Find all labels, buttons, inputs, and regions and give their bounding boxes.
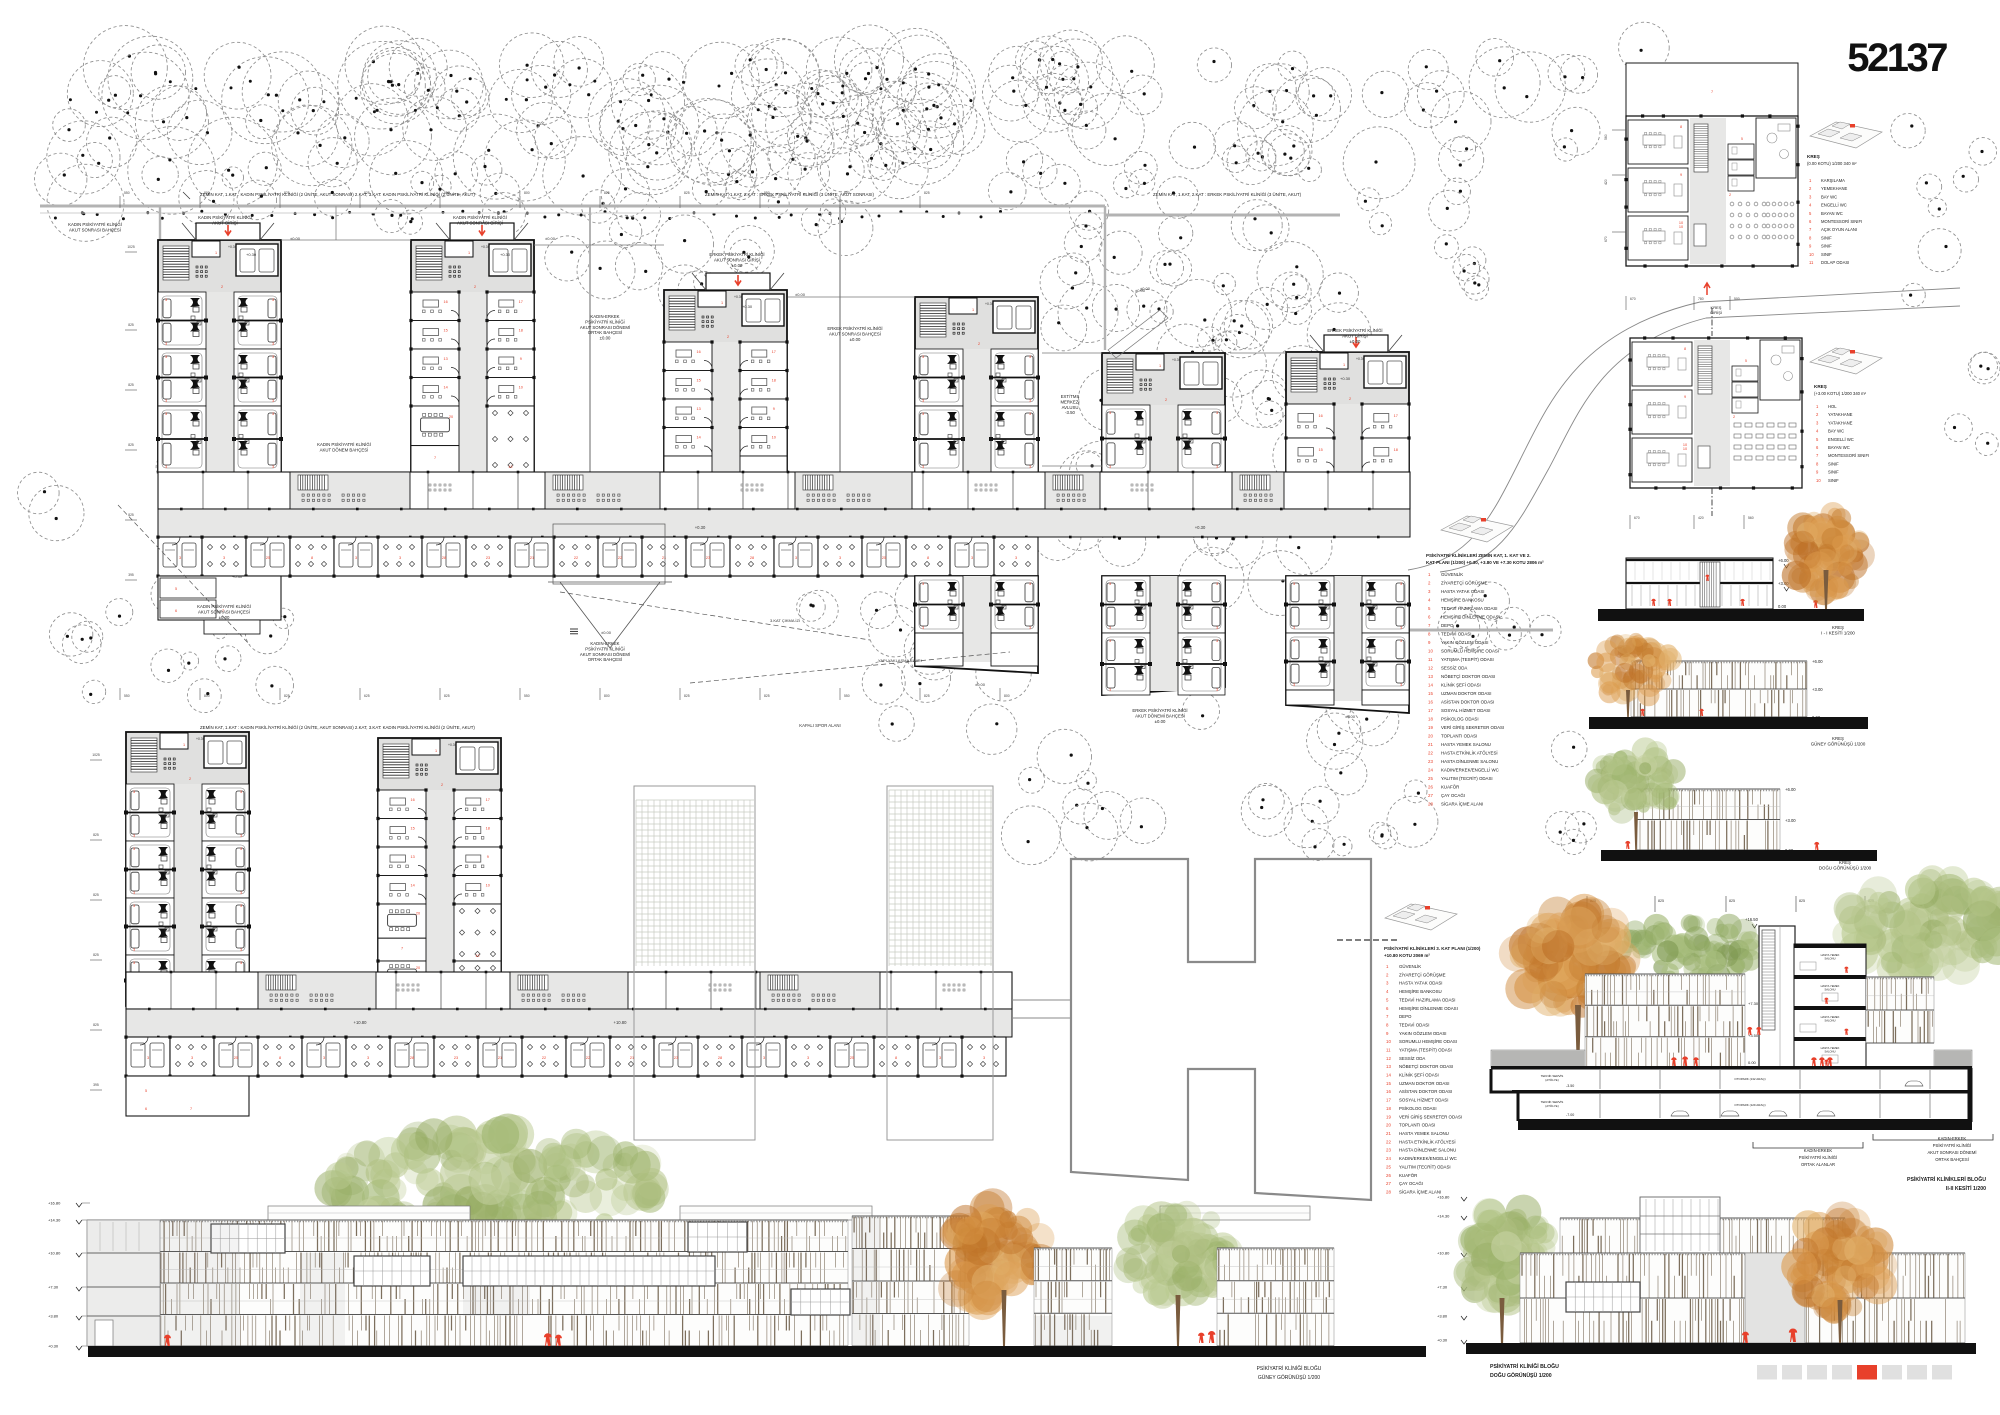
svg-text:±0.00: ±0.00 <box>290 236 301 241</box>
svg-text:BAYAN WC: BAYAN WC <box>1828 445 1850 450</box>
svg-text:±0.00: ±0.00 <box>600 336 611 341</box>
svg-text:-3.50: -3.50 <box>1566 1084 1574 1088</box>
svg-text:3: 3 <box>240 847 242 851</box>
svg-text:3: 3 <box>272 465 274 469</box>
svg-text:3: 3 <box>272 342 274 346</box>
svg-text:8: 8 <box>1680 125 1682 129</box>
svg-text:23: 23 <box>454 1056 458 1060</box>
svg-text:1: 1 <box>1343 363 1345 367</box>
svg-text:+16.80: +16.80 <box>48 1201 61 1206</box>
svg-text:11: 11 <box>1386 1048 1391 1053</box>
svg-text:AKUT GİRİŞİ: AKUT GİRİŞİ <box>1342 333 1367 338</box>
svg-text:26: 26 <box>1428 785 1433 790</box>
svg-text:3: 3 <box>223 556 225 560</box>
svg-text:3: 3 <box>983 1056 985 1060</box>
svg-text:+3.80: +3.80 <box>1437 1314 1448 1319</box>
svg-text:18: 18 <box>1386 1106 1391 1111</box>
svg-text:550: 550 <box>124 694 130 698</box>
svg-text:800: 800 <box>1004 694 1010 698</box>
svg-text:10: 10 <box>772 435 776 439</box>
svg-text:3: 3 <box>147 1056 149 1060</box>
svg-text:18: 18 <box>486 826 490 830</box>
svg-text:BAYAN WC: BAYAN WC <box>1821 211 1843 216</box>
svg-text:KUAFÖR: KUAFÖR <box>1399 1173 1417 1178</box>
svg-text:28: 28 <box>442 556 446 560</box>
svg-text:3: 3 <box>763 1056 765 1060</box>
svg-text:AKUT SONRASI DÖNEMİ: AKUT SONRASI DÖNEMİ <box>580 325 630 330</box>
svg-text:3: 3 <box>1029 399 1031 403</box>
svg-text:HASTA YATAK ODASI: HASTA YATAK ODASI <box>1399 981 1443 986</box>
svg-text:10: 10 <box>1428 649 1433 654</box>
svg-text:PSİKOLOG ODASI: PSİKOLOG ODASI <box>1399 1106 1437 1111</box>
svg-text:+7.30: +7.30 <box>1748 1001 1759 1006</box>
svg-text:+0.30: +0.30 <box>196 737 205 741</box>
svg-text:825: 825 <box>1658 899 1664 903</box>
svg-text:21: 21 <box>1428 742 1433 747</box>
svg-text:SESSİZ ODA: SESSİZ ODA <box>1399 1056 1425 1061</box>
svg-text:±0.00: ±0.00 <box>732 263 743 268</box>
svg-text:3: 3 <box>839 556 841 560</box>
svg-text:YATAKHANE: YATAKHANE <box>1828 412 1853 417</box>
svg-text:5: 5 <box>1741 137 1743 141</box>
svg-text:550: 550 <box>124 191 130 195</box>
svg-text:SALONU: SALONU <box>1824 987 1835 991</box>
svg-text:PSİKİYATRİ KLİNİĞİ: PSİKİYATRİ KLİNİĞİ <box>1933 1143 1971 1148</box>
svg-text:MONTESSORİ SINIFI: MONTESSORİ SINIFI <box>1821 219 1862 224</box>
svg-text:23: 23 <box>706 556 710 560</box>
svg-text:16: 16 <box>1318 414 1322 418</box>
svg-text:TEDAVİ HAZIRLAMA ODASI: TEDAVİ HAZIRLAMA ODASI <box>1399 997 1456 1002</box>
svg-text:+7.30: +7.30 <box>48 1285 59 1290</box>
svg-text:HEMŞİRE DİNLENME ODASI: HEMŞİRE DİNLENME ODASI <box>1399 1006 1458 1011</box>
svg-text:ÇAY OCAĞI: ÇAY OCAĞI <box>1399 1181 1423 1186</box>
svg-text:HEMŞİRE DİNLENME ODASI: HEMŞİRE DİNLENME ODASI <box>1441 615 1500 620</box>
svg-text:18: 18 <box>772 378 776 382</box>
svg-text:(0.00 KOTU) 1/200 340 m²: (0.00 KOTU) 1/200 340 m² <box>1807 161 1857 166</box>
svg-text:3: 3 <box>272 298 274 302</box>
svg-text:13: 13 <box>1428 674 1433 679</box>
svg-text:AKUT SONRASI BAHÇESİ: AKUT SONRASI BAHÇESİ <box>69 227 121 232</box>
svg-text:SINIF: SINIF <box>1821 252 1832 257</box>
svg-text:MONTESSORİ SINIFI: MONTESSORİ SINIFI <box>1828 453 1869 458</box>
svg-text:NÖBETÇİ DOKTOR ODASI: NÖBETÇİ DOKTOR ODASI <box>1399 1064 1453 1069</box>
svg-text:SİGARA İÇME ALANI: SİGARA İÇME ALANI <box>1399 1190 1441 1195</box>
svg-text:3.KAT ÇIKMA İZİ: 3.KAT ÇIKMA İZİ <box>770 618 800 623</box>
svg-text:14: 14 <box>410 883 414 887</box>
svg-text:24: 24 <box>1386 1156 1391 1161</box>
svg-text:I - I KESİTİ 1/200: I - I KESİTİ 1/200 <box>1821 631 1855 636</box>
svg-text:52137: 52137 <box>1847 36 1947 80</box>
svg-text:20: 20 <box>1386 1123 1391 1128</box>
svg-text:28: 28 <box>1428 802 1433 807</box>
svg-text:825: 825 <box>93 893 99 897</box>
svg-text:825: 825 <box>128 323 134 327</box>
svg-text:21: 21 <box>530 556 534 560</box>
svg-text:3: 3 <box>1216 582 1218 586</box>
svg-text:3: 3 <box>1109 582 1111 586</box>
svg-text:KADIN PSİKİYATRİ KLİNİĞİ: KADIN PSİKİYATRİ KLİNİĞİ <box>198 215 252 220</box>
svg-text:SINIF: SINIF <box>1828 461 1839 466</box>
svg-text:3: 3 <box>272 412 274 416</box>
svg-text:3: 3 <box>1216 688 1218 692</box>
svg-text:10: 10 <box>519 385 523 389</box>
svg-text:KAT PLANI (1/200) +0.30, +3.8: KAT PLANI (1/200) +0.30, +3.80 VE +7.30 … <box>1426 560 1544 565</box>
svg-text:25: 25 <box>1428 776 1433 781</box>
svg-text:+3.00: +3.00 <box>1785 818 1796 823</box>
svg-text:22: 22 <box>542 1056 546 1060</box>
svg-text:KADIN PSİKİYATRİ KLİNİĞİ: KADIN PSİKİYATRİ KLİNİĞİ <box>453 215 507 220</box>
svg-text:AKUT SONRASI DÖNEMİ: AKUT SONRASI DÖNEMİ <box>580 652 630 657</box>
svg-text:3: 3 <box>133 891 135 895</box>
svg-text:3: 3 <box>165 342 167 346</box>
svg-text:11: 11 <box>1809 260 1814 265</box>
svg-text:AKUT DÖNEMİ BAHÇESİ: AKUT DÖNEMİ BAHÇESİ <box>1135 713 1185 718</box>
svg-text:3: 3 <box>240 790 242 794</box>
svg-text:+6.00: +6.00 <box>1812 659 1823 664</box>
svg-text:1: 1 <box>435 749 437 753</box>
svg-text:825: 825 <box>924 191 930 195</box>
svg-text:17: 17 <box>1386 1098 1391 1103</box>
svg-text:3: 3 <box>1109 411 1111 415</box>
svg-text:23: 23 <box>1386 1148 1391 1153</box>
svg-text:3: 3 <box>323 1056 325 1060</box>
svg-text:3: 3 <box>922 355 924 359</box>
svg-text:3: 3 <box>133 790 135 794</box>
svg-text:3: 3 <box>807 1056 809 1060</box>
svg-text:AVLUSU: AVLUSU <box>1062 405 1079 410</box>
svg-text:19: 19 <box>1428 725 1433 730</box>
svg-text:+0.30: +0.30 <box>232 574 243 579</box>
svg-text:AKUT GİRİŞİ: AKUT GİRİŞİ <box>212 220 237 225</box>
svg-text:800: 800 <box>844 191 850 195</box>
svg-text:12: 12 <box>1428 666 1433 671</box>
svg-text:PSİKİYATRİ KLİNİĞİ: PSİKİYATRİ KLİNİĞİ <box>585 319 624 324</box>
svg-text:21: 21 <box>630 1056 634 1060</box>
svg-text:±0.00: ±0.00 <box>1345 714 1356 719</box>
svg-text:GÜVENLİK: GÜVENLİK <box>1399 964 1421 969</box>
svg-text:22: 22 <box>618 556 622 560</box>
svg-text:±0.00: ±0.00 <box>1350 339 1361 344</box>
svg-text:II-II KESİTİ 1/200: II-II KESİTİ 1/200 <box>1946 1185 1986 1192</box>
svg-text:KLİNİK ŞEFİ ODASI: KLİNİK ŞEFİ ODASI <box>1441 683 1481 688</box>
svg-text:16: 16 <box>696 350 700 354</box>
svg-text:550: 550 <box>764 191 770 195</box>
svg-text:KARŞILAMA: KARŞILAMA <box>1821 178 1845 183</box>
svg-text:GÜVENLİK: GÜVENLİK <box>1441 572 1463 577</box>
svg-text:SALONU: SALONU <box>1824 956 1835 960</box>
svg-text:YAKIN GÖZLEM ODASI: YAKIN GÖZLEM ODASI <box>1399 1031 1447 1036</box>
svg-text:3: 3 <box>272 399 274 403</box>
svg-text:560: 560 <box>1748 516 1754 520</box>
svg-text:25: 25 <box>266 556 270 560</box>
svg-text:HEMŞİRE BANKOSU: HEMŞİRE BANKOSU <box>1399 989 1442 994</box>
svg-text:20: 20 <box>416 911 420 915</box>
svg-text:25: 25 <box>850 1056 854 1060</box>
svg-text:KADIN/ERKEK/ENGELLİ WC: KADIN/ERKEK/ENGELLİ WC <box>1441 768 1499 773</box>
svg-text:3: 3 <box>191 1056 193 1060</box>
svg-text:3: 3 <box>1015 556 1017 560</box>
svg-text:21: 21 <box>1386 1131 1391 1136</box>
svg-text:3: 3 <box>1400 626 1402 630</box>
svg-text:3: 3 <box>240 904 242 908</box>
svg-text:KADIN-ERKEK: KADIN-ERKEK <box>590 314 619 319</box>
svg-text:DEPO: DEPO <box>1441 623 1454 628</box>
svg-text:3: 3 <box>165 465 167 469</box>
svg-text:3: 3 <box>165 412 167 416</box>
svg-text:+3.00: +3.00 <box>1812 687 1823 692</box>
svg-text:825: 825 <box>1729 899 1735 903</box>
svg-text:+0.30: +0.30 <box>695 525 706 530</box>
svg-text:800: 800 <box>204 191 210 195</box>
svg-text:15: 15 <box>696 378 700 382</box>
svg-text:8: 8 <box>311 556 313 560</box>
svg-text:ZİYARETÇİ GÖRÜŞME: ZİYARETÇİ GÖRÜŞME <box>1399 972 1446 977</box>
svg-text:ZEMİN KAT, 1.KAT : KADIN PSKİL: ZEMİN KAT, 1.KAT : KADIN PSKİLİYATRİ KLİ… <box>200 725 475 730</box>
svg-text:10: 10 <box>1386 1039 1391 1044</box>
svg-text:KADIN PSİKİYATRİ KLİNİĞİ: KADIN PSİKİYATRİ KLİNİĞİ <box>68 222 122 227</box>
svg-text:SORUMLU HEMŞİRE ODASI: SORUMLU HEMŞİRE ODASI <box>1441 649 1499 654</box>
svg-text:825: 825 <box>128 443 134 447</box>
svg-text:3: 3 <box>1029 412 1031 416</box>
svg-text:HASTA YEMEK SALONU: HASTA YEMEK SALONU <box>1399 1131 1449 1136</box>
svg-text:PSİKİYATRİ KLİNİĞİ BLOĞU: PSİKİYATRİ KLİNİĞİ BLOĞU <box>1257 1365 1322 1372</box>
svg-text:9: 9 <box>487 855 489 859</box>
svg-text:YALITIM (TECRİT) ODASI: YALITIM (TECRİT) ODASI <box>1441 776 1493 781</box>
svg-text:3: 3 <box>355 556 357 560</box>
svg-text:1: 1 <box>215 251 217 255</box>
svg-text:825: 825 <box>684 694 690 698</box>
svg-text:YEMEKHANE: YEMEKHANE <box>1821 186 1848 191</box>
svg-text:1025: 1025 <box>127 245 135 249</box>
svg-text:3: 3 <box>133 961 135 965</box>
svg-text:EXT/TMS: EXT/TMS <box>1061 394 1080 399</box>
svg-text:AKUT SONRASI GİRİŞİ: AKUT SONRASI GİRİŞİ <box>457 220 503 225</box>
svg-text:ZEMİN KAT, 1.KAT, 2.KAT : ERKE: ZEMİN KAT, 1.KAT, 2.KAT : ERKEK PSKİLİYA… <box>1153 192 1302 197</box>
svg-text:3: 3 <box>939 1056 941 1060</box>
svg-text:3: 3 <box>922 465 924 469</box>
svg-text:17: 17 <box>486 798 490 802</box>
svg-text:HASTA DİNLENME SALONU: HASTA DİNLENME SALONU <box>1441 759 1498 764</box>
svg-text:395: 395 <box>93 1083 99 1087</box>
svg-text:22: 22 <box>586 1056 590 1060</box>
svg-text:9: 9 <box>520 357 522 361</box>
svg-text:(ATÖLYE): (ATÖLYE) <box>1545 1104 1558 1108</box>
svg-text:3: 3 <box>1293 683 1295 687</box>
svg-text:±0.00: ±0.00 <box>1155 719 1166 724</box>
svg-text:3: 3 <box>922 412 924 416</box>
svg-text:3: 3 <box>1216 626 1218 630</box>
svg-text:8: 8 <box>895 1056 897 1060</box>
svg-text:HASTA ETKİNLİK ATÖLYESİ: HASTA ETKİNLİK ATÖLYESİ <box>1399 1139 1456 1144</box>
svg-text:SALONU: SALONU <box>1824 1049 1835 1053</box>
svg-text:13: 13 <box>1386 1064 1391 1069</box>
svg-text:VERİ GİRİŞ SEKRETER ODASI: VERİ GİRİŞ SEKRETER ODASI <box>1399 1114 1462 1119</box>
svg-text:16: 16 <box>443 300 447 304</box>
svg-text:+10.80: +10.80 <box>354 1020 368 1025</box>
svg-text:+0.30: +0.30 <box>246 252 257 257</box>
svg-text:17: 17 <box>1428 708 1433 713</box>
svg-text:800: 800 <box>524 191 530 195</box>
svg-text:PSİKOLOG ODASI: PSİKOLOG ODASI <box>1441 717 1479 722</box>
svg-text:9: 9 <box>1680 173 1682 177</box>
svg-text:550: 550 <box>444 191 450 195</box>
svg-text:17: 17 <box>772 350 776 354</box>
svg-text:KREŞ: KREŞ <box>1807 154 1820 159</box>
svg-text:2: 2 <box>441 783 443 787</box>
svg-text:3: 3 <box>399 556 401 560</box>
svg-text:YALITIM (TECRİT) ODASI: YALITIM (TECRİT) ODASI <box>1399 1164 1451 1169</box>
svg-text:8: 8 <box>279 1056 281 1060</box>
svg-text:23: 23 <box>674 1056 678 1060</box>
svg-text:13: 13 <box>410 855 414 859</box>
svg-text:DOĞU GÖRÜNÜŞÜ 1/200: DOĞU GÖRÜNÜŞÜ 1/200 <box>1490 1371 1552 1379</box>
svg-text:3: 3 <box>240 891 242 895</box>
svg-text:ERKEK PSİKİYATRİ KLİNİĞİ: ERKEK PSİKİYATRİ KLİNİĞİ <box>1132 708 1187 713</box>
svg-text:2: 2 <box>978 342 980 346</box>
svg-text:UZMAN DOKTOR ODASI: UZMAN DOKTOR ODASI <box>1441 691 1491 696</box>
svg-text:560: 560 <box>1604 134 1608 140</box>
svg-text:+7.30: +7.30 <box>1437 1285 1448 1290</box>
svg-text:SOSYAL HİZMET ODASI: SOSYAL HİZMET ODASI <box>1441 708 1490 713</box>
svg-text:670: 670 <box>1634 516 1640 520</box>
svg-text:3: 3 <box>1216 639 1218 643</box>
svg-text:825: 825 <box>924 694 930 698</box>
svg-text:DOĞU GÖRÜNÜŞÜ 1/200: DOĞU GÖRÜNÜŞÜ 1/200 <box>1819 866 1872 871</box>
svg-text:20: 20 <box>416 966 420 970</box>
svg-text:YATIŞMA (TESPİT) ODASI: YATIŞMA (TESPİT) ODASI <box>1399 1048 1452 1053</box>
svg-text:3: 3 <box>1293 582 1295 586</box>
svg-text:10: 10 <box>1683 447 1687 451</box>
svg-text:ZEMİN KAT, 1.KAT : KADIN PSKİL: ZEMİN KAT, 1.KAT : KADIN PSKİLİYATRİ KLİ… <box>200 192 475 197</box>
svg-text:+0.30: +0.30 <box>1172 358 1181 362</box>
svg-text:3: 3 <box>922 399 924 403</box>
svg-text:825: 825 <box>284 191 290 195</box>
svg-text:1: 1 <box>468 251 470 255</box>
svg-text:YATIŞMA (TESPİT) ODASI: YATIŞMA (TESPİT) ODASI <box>1441 657 1494 662</box>
svg-text:20: 20 <box>449 415 453 419</box>
svg-text:±0.00: ±0.00 <box>975 682 986 687</box>
svg-text:3: 3 <box>179 556 181 560</box>
svg-text:19: 19 <box>1386 1114 1391 1119</box>
svg-text:ASİSTAN DOKTOR ODASI: ASİSTAN DOKTOR ODASI <box>1399 1089 1452 1094</box>
svg-text:ORTAK BAHÇESİ: ORTAK BAHÇESİ <box>588 657 622 662</box>
svg-text:AKUT DÖNEM BAHÇESİ: AKUT DÖNEM BAHÇESİ <box>320 447 369 452</box>
svg-text:2: 2 <box>1733 415 1735 419</box>
svg-text:22: 22 <box>1428 751 1433 756</box>
svg-text:(+3.00 KOTU) 1/200 340 m²: (+3.00 KOTU) 1/200 340 m² <box>1814 391 1867 396</box>
svg-text:3: 3 <box>1029 582 1031 586</box>
svg-text:BAY WC: BAY WC <box>1821 194 1837 199</box>
svg-text:TOPLANTI ODASI: TOPLANTI ODASI <box>1399 1123 1435 1128</box>
svg-text:625: 625 <box>364 694 370 698</box>
svg-text:SESSİZ ODA: SESSİZ ODA <box>1441 666 1467 671</box>
svg-text:PSİKİYATRİ KLİNİĞİ BLOĞU: PSİKİYATRİ KLİNİĞİ BLOĞU <box>1490 1362 1559 1370</box>
svg-text:SALONU: SALONU <box>1824 1018 1835 1022</box>
svg-text:ERKEK PSİKİYATRİ KLİNİĞİ: ERKEK PSİKİYATRİ KLİNİĞİ <box>827 326 882 331</box>
svg-text:SINIF: SINIF <box>1828 478 1839 483</box>
svg-text:+10.80 KOTU 2069 m²: +10.80 KOTU 2069 m² <box>1384 953 1430 958</box>
svg-text:HASTA YATAK ODASI: HASTA YATAK ODASI <box>1441 589 1485 594</box>
svg-text:420: 420 <box>1698 516 1704 520</box>
svg-text:KADIN PSİKİYATRİ KLİNİĞİ: KADIN PSİKİYATRİ KLİNİĞİ <box>197 604 251 609</box>
svg-text:+0.30: +0.30 <box>985 302 994 306</box>
svg-text:3: 3 <box>1109 465 1111 469</box>
svg-text:825: 825 <box>364 191 370 195</box>
svg-text:HASTA ETKİNLİK ATÖLYESİ: HASTA ETKİNLİK ATÖLYESİ <box>1441 751 1498 756</box>
svg-text:3: 3 <box>922 626 924 630</box>
svg-text:HASTA YEMEK: HASTA YEMEK <box>1821 1046 1840 1050</box>
svg-text:+0.30: +0.30 <box>1437 1338 1448 1343</box>
svg-text:3: 3 <box>1216 411 1218 415</box>
svg-text:5: 5 <box>175 587 177 591</box>
svg-text:SINIF: SINIF <box>1821 235 1832 240</box>
svg-text:28: 28 <box>410 1056 414 1060</box>
svg-text:5: 5 <box>1745 359 1747 363</box>
svg-text:YAKIN GÖZLEM ODASI: YAKIN GÖZLEM ODASI <box>1441 640 1489 645</box>
svg-text:2: 2 <box>1729 193 1731 197</box>
svg-text:7: 7 <box>190 1107 192 1111</box>
svg-text:3: 3 <box>165 298 167 302</box>
svg-text:670: 670 <box>1604 236 1608 242</box>
svg-text:3: 3 <box>1400 582 1402 586</box>
svg-text:6: 6 <box>145 1107 147 1111</box>
svg-text:+16.80: +16.80 <box>1437 1195 1450 1200</box>
svg-text:28: 28 <box>718 1056 722 1060</box>
svg-text:3: 3 <box>240 834 242 838</box>
svg-text:3: 3 <box>240 948 242 952</box>
svg-text:2: 2 <box>1165 398 1167 402</box>
svg-text:15: 15 <box>410 826 414 830</box>
svg-text:3: 3 <box>1109 626 1111 630</box>
svg-text:15: 15 <box>443 328 447 332</box>
svg-text:±0.00: ±0.00 <box>545 236 556 241</box>
svg-text:10: 10 <box>486 883 490 887</box>
svg-text:3: 3 <box>133 904 135 908</box>
svg-text:825: 825 <box>128 383 134 387</box>
svg-text:7: 7 <box>401 947 403 951</box>
svg-text:ORTAK BAHÇESİ: ORTAK BAHÇESİ <box>588 330 622 335</box>
svg-text:KAPALI SPOR ALANI: KAPALI SPOR ALANI <box>799 723 840 728</box>
svg-text:-7.00: -7.00 <box>1566 1113 1574 1117</box>
svg-text:+10.80: +10.80 <box>614 1020 628 1025</box>
svg-text:5: 5 <box>145 1089 147 1093</box>
svg-text:1: 1 <box>721 301 723 305</box>
svg-text:TEDAVİ HAZIRLAMA ODASI: TEDAVİ HAZIRLAMA ODASI <box>1441 606 1498 611</box>
svg-text:2: 2 <box>474 285 476 289</box>
svg-text:PSİKİYATRİ KLİNİĞİ: PSİKİYATRİ KLİNİĞİ <box>585 646 624 651</box>
svg-text:14: 14 <box>1386 1073 1391 1078</box>
svg-text:KREŞ: KREŞ <box>1839 860 1851 865</box>
svg-text:ZİYARETÇİ GÖRÜŞME: ZİYARETÇİ GÖRÜŞME <box>1441 581 1488 586</box>
svg-text:+0.30: +0.30 <box>742 304 753 309</box>
svg-text:3: 3 <box>165 399 167 403</box>
svg-text:20: 20 <box>1428 734 1433 739</box>
svg-text:SOSYAL HİZMET ODASI: SOSYAL HİZMET ODASI <box>1399 1098 1448 1103</box>
svg-text:KREŞ: KREŞ <box>1814 384 1827 389</box>
svg-text:23: 23 <box>486 556 490 560</box>
svg-text:+14.30: +14.30 <box>1437 1214 1450 1219</box>
svg-text:12: 12 <box>475 954 479 958</box>
svg-text:13: 13 <box>443 357 447 361</box>
svg-text:GÜNEY GÖRÜNÜŞÜ 1/200: GÜNEY GÖRÜNÜŞÜ 1/200 <box>1258 1374 1320 1381</box>
svg-text:25: 25 <box>1386 1164 1391 1169</box>
svg-text:825: 825 <box>444 694 450 698</box>
svg-text:6: 6 <box>175 609 177 613</box>
svg-text:2: 2 <box>221 285 223 289</box>
svg-text:825: 825 <box>93 1023 99 1027</box>
svg-text:825: 825 <box>93 953 99 957</box>
svg-text:1: 1 <box>1159 364 1161 368</box>
